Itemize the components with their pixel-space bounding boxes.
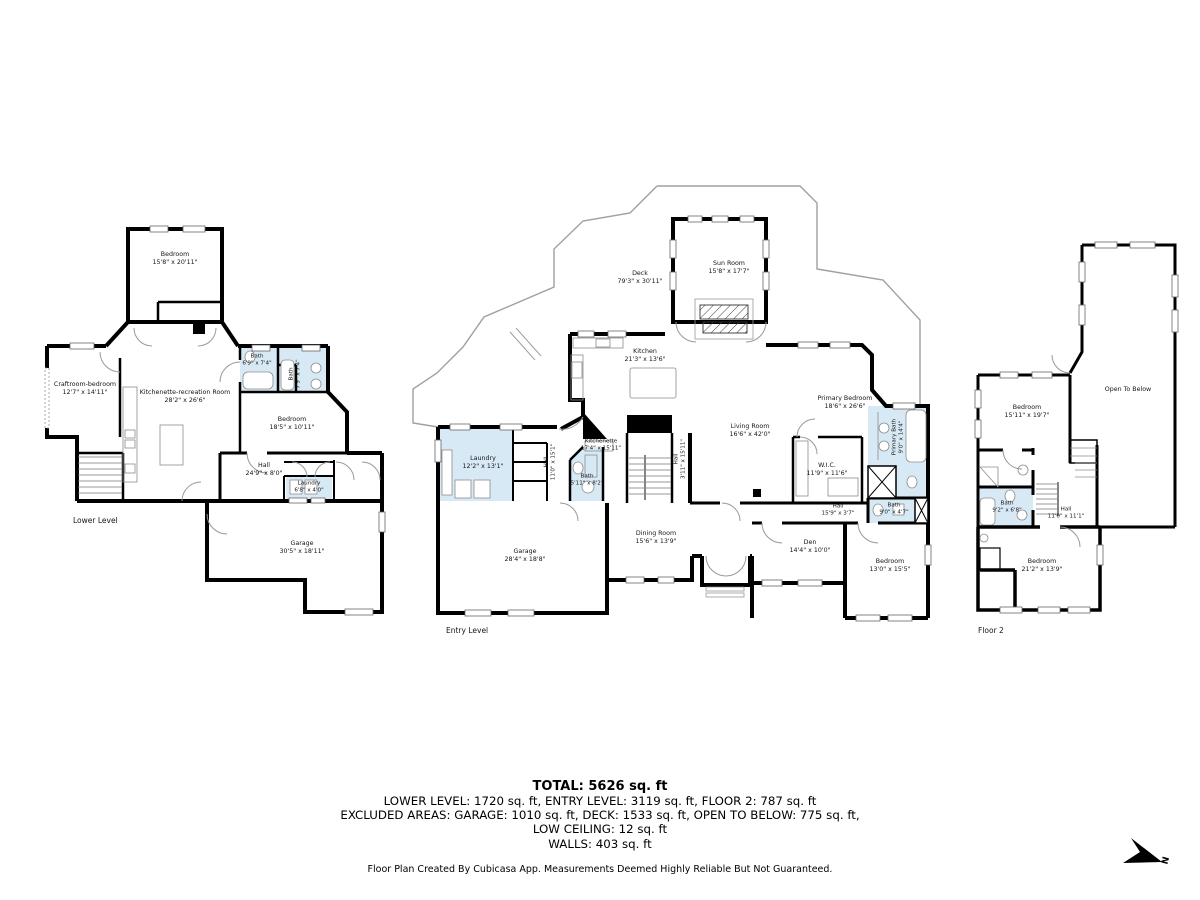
entry-level-plan: [413, 186, 931, 621]
total-area: TOTAL: 5626 sq. ft: [0, 779, 1200, 794]
floorplan-graphic: [0, 0, 1200, 900]
level-areas: LOWER LEVEL: 1720 sq. ft, ENTRY LEVEL: 3…: [0, 794, 1200, 808]
walls-area: WALLS: 403 sq. ft: [0, 837, 1200, 851]
lower-level-plan: [45, 226, 385, 615]
disclaimer: Floor Plan Created By Cubicasa App. Meas…: [0, 864, 1200, 875]
area-summary: TOTAL: 5626 sq. ft LOWER LEVEL: 1720 sq.…: [0, 779, 1200, 875]
excluded-areas: EXCLUDED AREAS: GARAGE: 1010 sq. ft, DEC…: [0, 808, 1200, 822]
low-ceiling-area: LOW CEILING: 12 sq. ft: [0, 822, 1200, 836]
floor-2-plan: [975, 242, 1178, 613]
